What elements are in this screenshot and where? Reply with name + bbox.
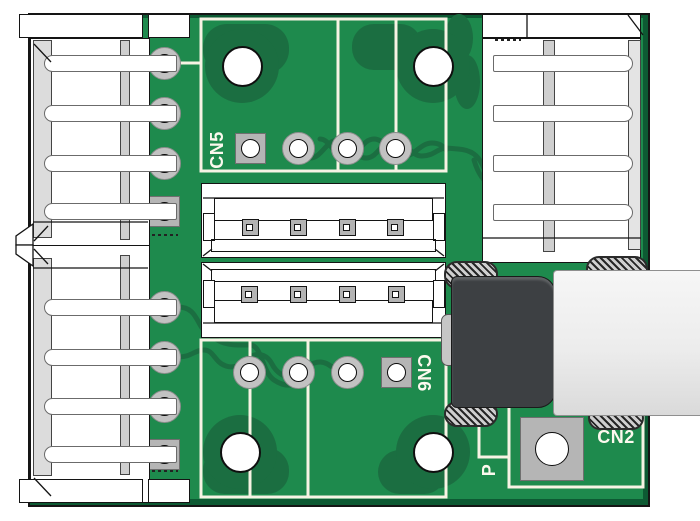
- label-layer: CN5 CN6 CN2 P: [0, 0, 700, 521]
- cn2-label: CN2: [586, 425, 646, 447]
- cn6-label: CN6: [410, 345, 436, 401]
- cn5-label: CN5: [205, 122, 231, 178]
- p-label: P: [477, 455, 499, 485]
- pcb-render: CN5 CN6 CN2 P: [0, 0, 700, 521]
